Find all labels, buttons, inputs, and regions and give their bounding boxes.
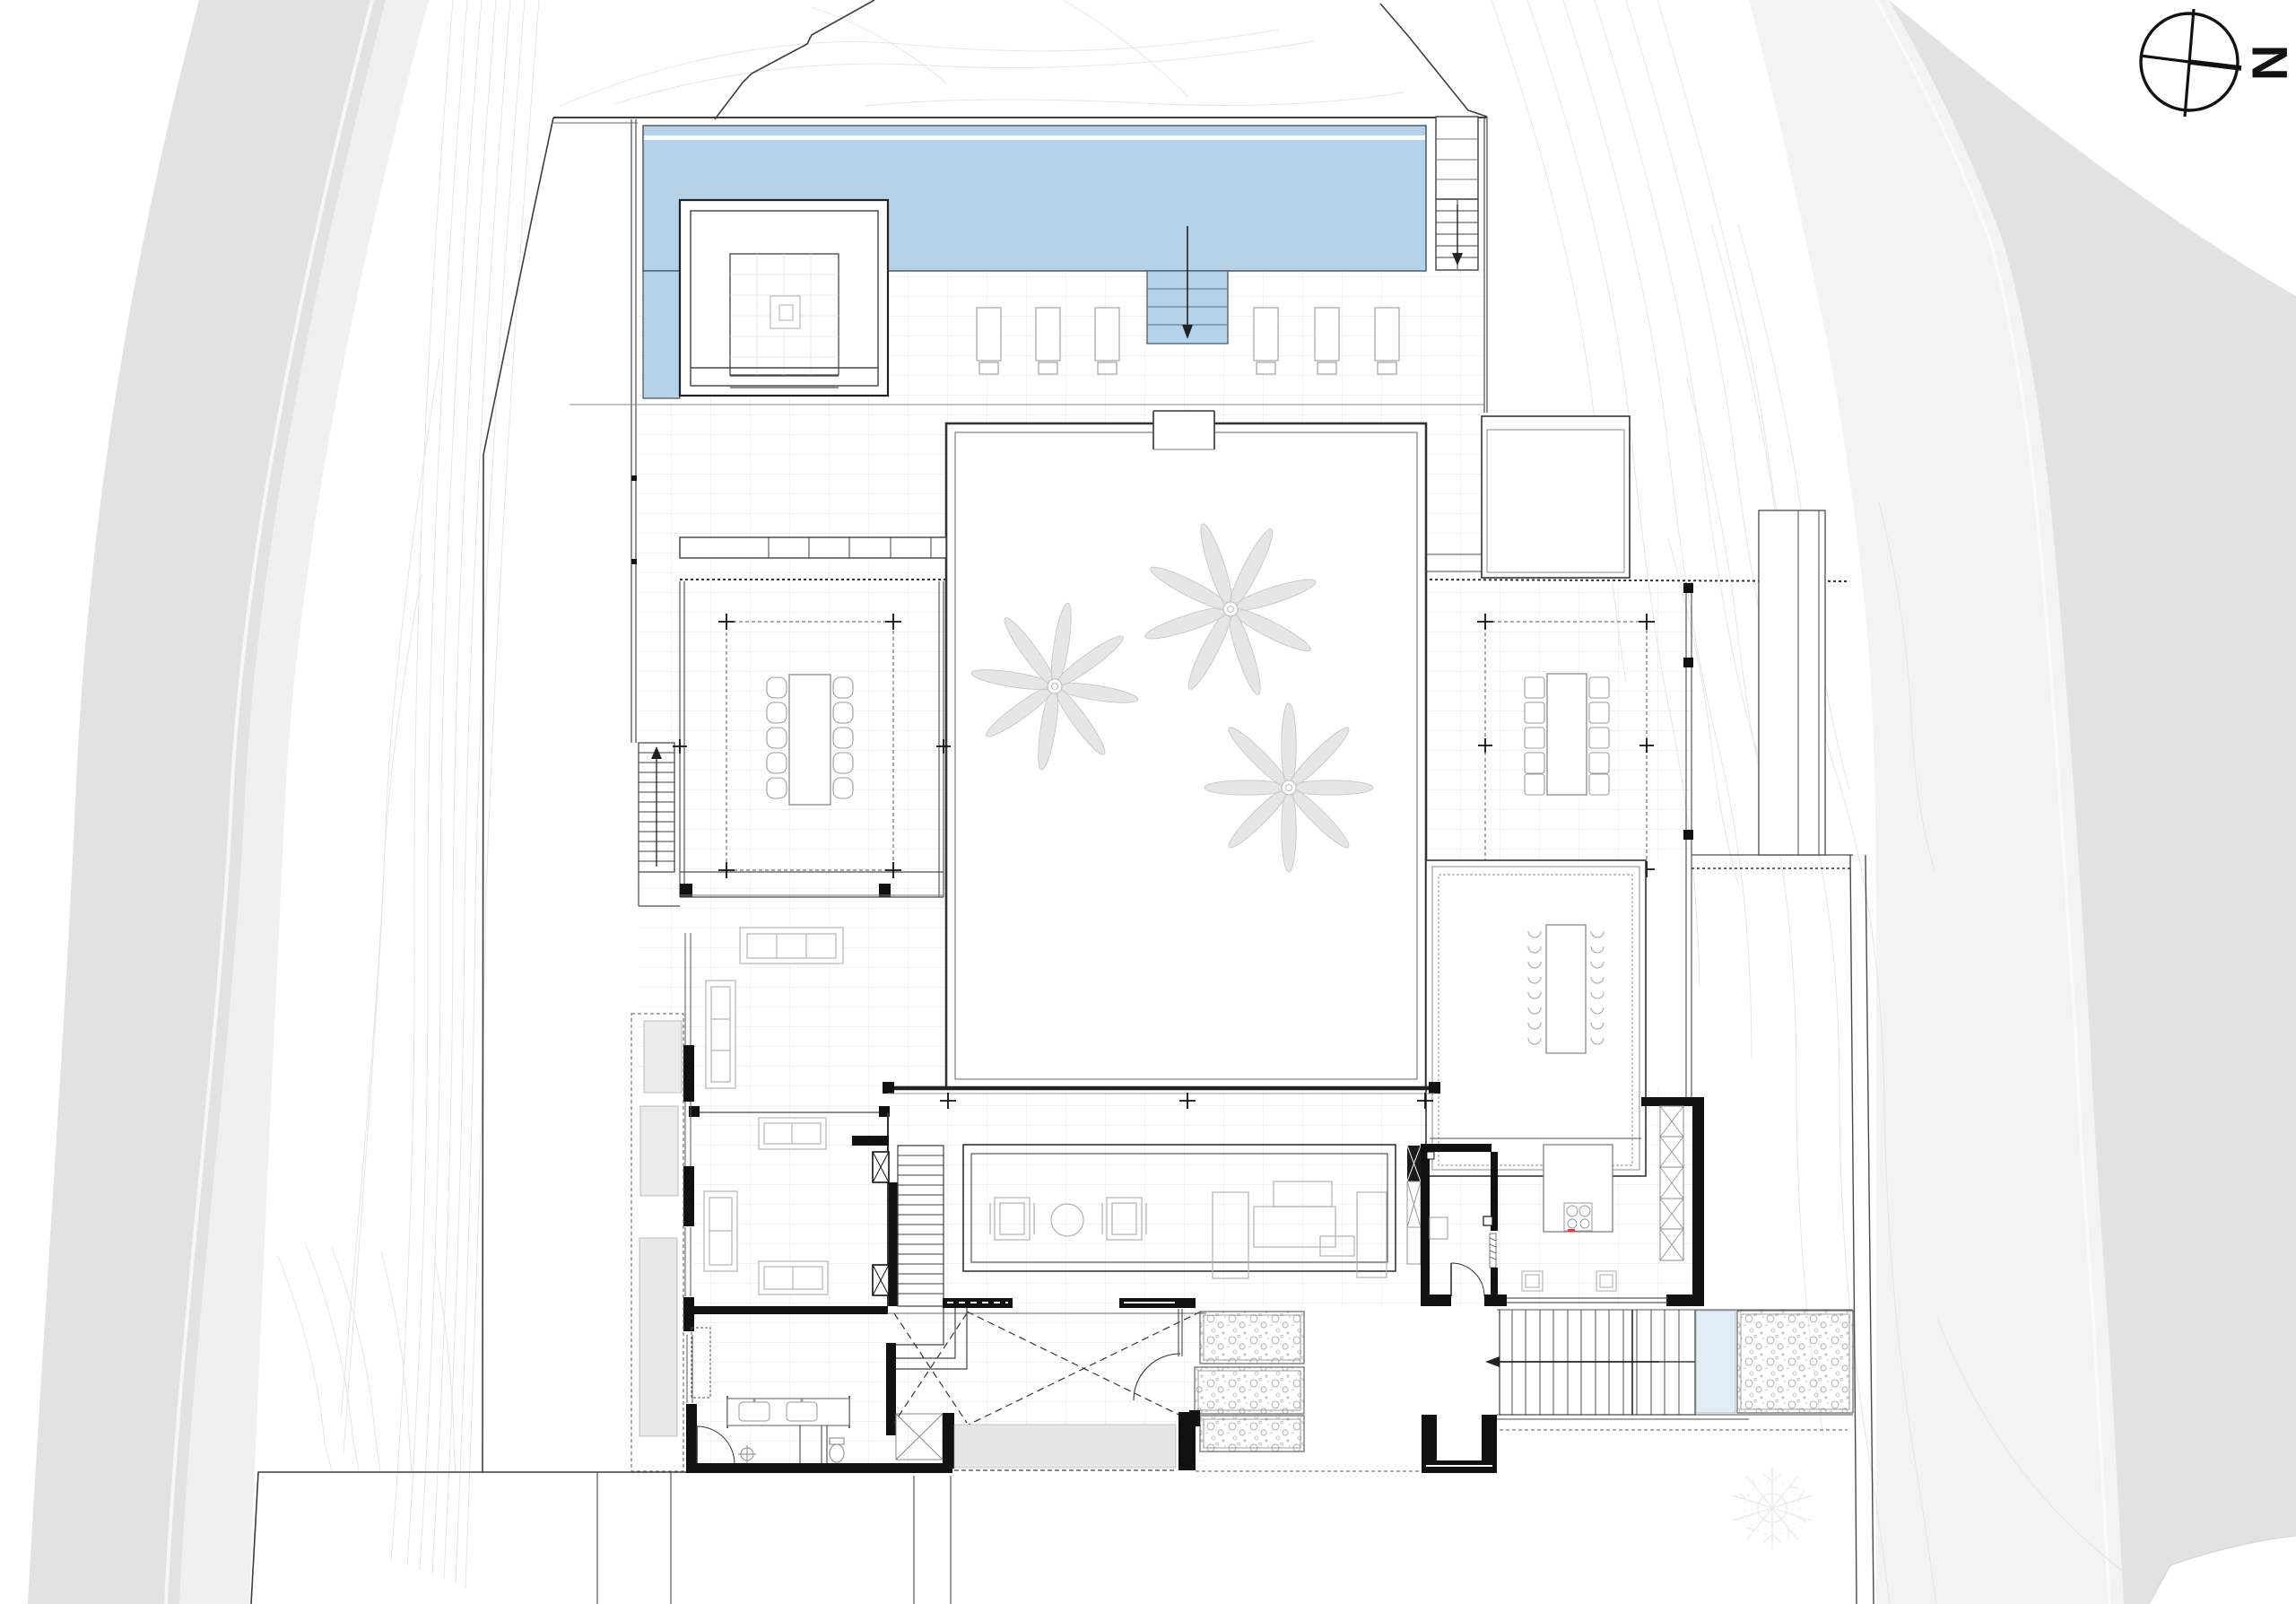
svg-text:N: N — [2242, 45, 2296, 81]
